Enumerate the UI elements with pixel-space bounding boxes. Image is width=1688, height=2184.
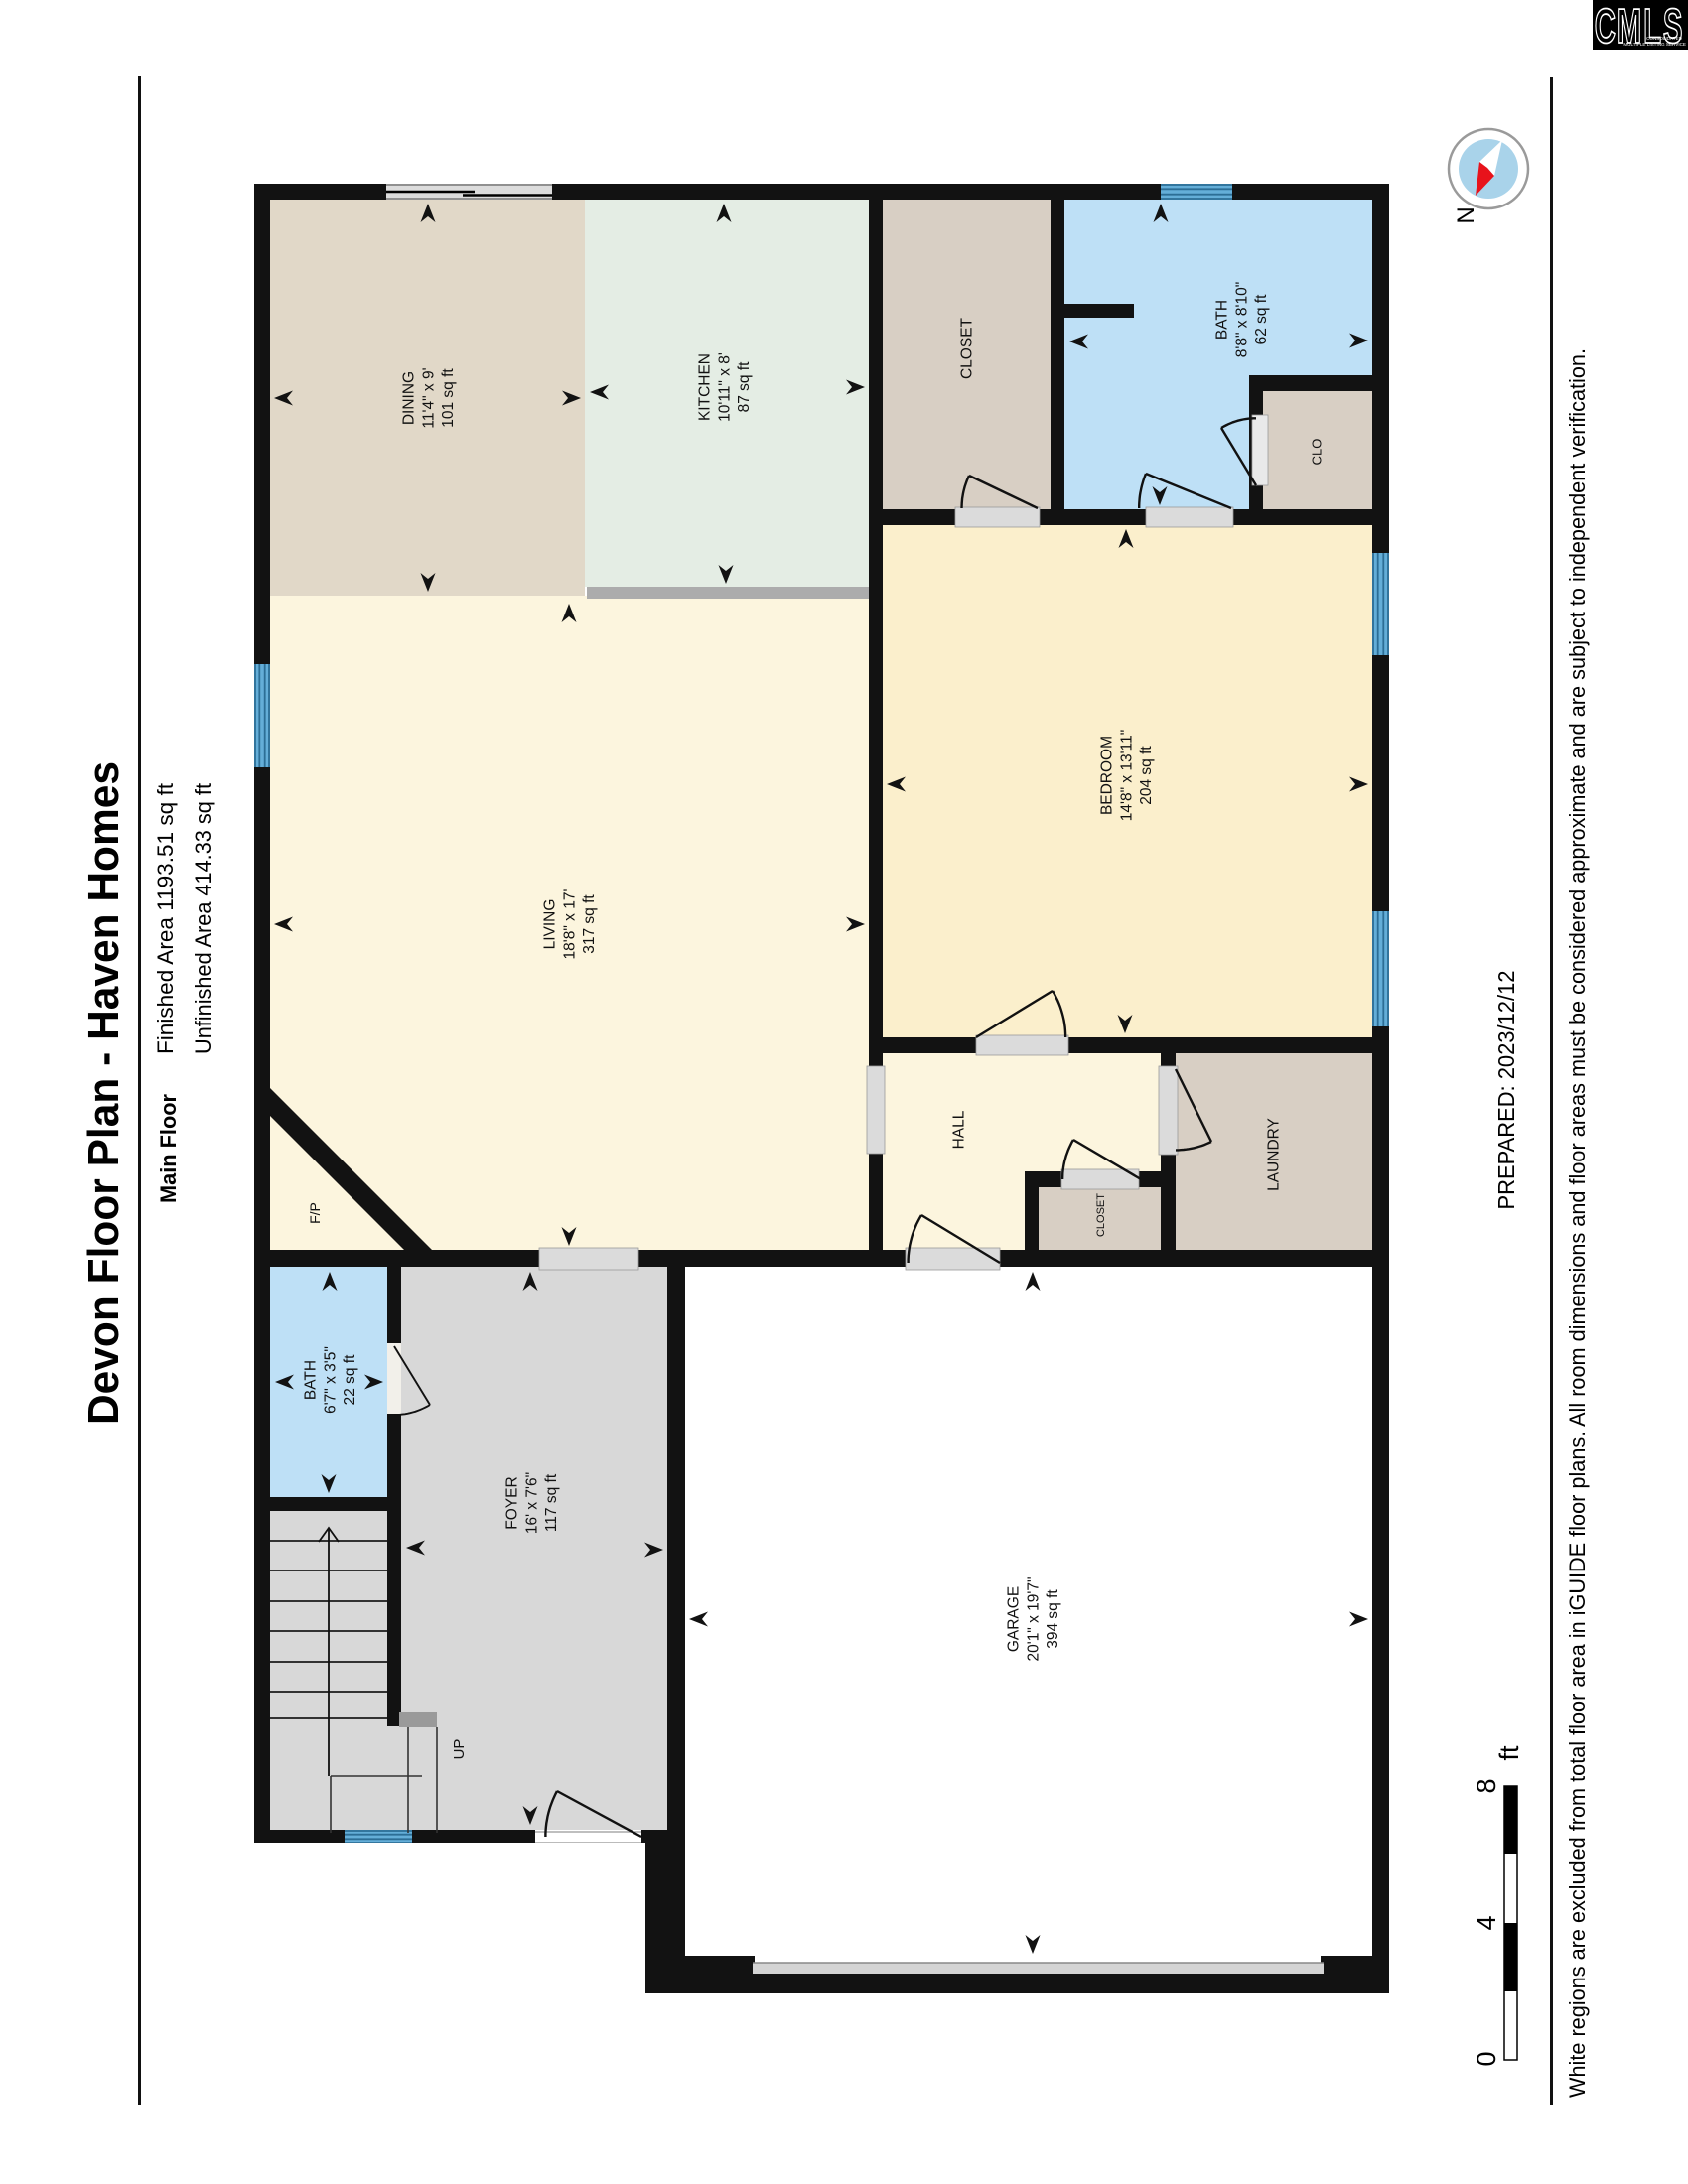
svg-text:Devon Floor Plan - Haven Homes: Devon Floor Plan - Haven Homes bbox=[79, 761, 128, 1425]
svg-text:ft: ft bbox=[1494, 1745, 1524, 1761]
svg-text:UP: UP bbox=[451, 1739, 468, 1760]
svg-text:White regions are excluded fro: White regions are excluded from total fl… bbox=[1565, 348, 1590, 2098]
svg-text:317 sq ft: 317 sq ft bbox=[581, 894, 598, 954]
svg-text:CLOSET: CLOSET bbox=[958, 317, 975, 379]
svg-text:101 sq ft: 101 sq ft bbox=[440, 368, 457, 428]
svg-text:0: 0 bbox=[1472, 2051, 1501, 2066]
svg-text:6'7" x 3'5": 6'7" x 3'5" bbox=[322, 1346, 339, 1414]
svg-text:16' x 7'6": 16' x 7'6" bbox=[523, 1472, 540, 1534]
svg-text:DINING: DINING bbox=[401, 371, 418, 425]
svg-text:20'1" x 19'7": 20'1" x 19'7" bbox=[1025, 1576, 1042, 1661]
svg-text:LIVING: LIVING bbox=[542, 899, 559, 950]
svg-text:CONSOLIDATED: CONSOLIDATED bbox=[1646, 36, 1683, 41]
svg-text:N: N bbox=[1453, 206, 1479, 223]
svg-text:11'4" x 9': 11'4" x 9' bbox=[420, 367, 437, 428]
svg-text:F/P: F/P bbox=[307, 1202, 323, 1224]
svg-text:HALL: HALL bbox=[950, 1110, 967, 1149]
svg-text:117 sq ft: 117 sq ft bbox=[543, 1473, 560, 1532]
svg-text:FOYER: FOYER bbox=[504, 1476, 521, 1529]
svg-text:PREPARED: 2023/12/12: PREPARED: 2023/12/12 bbox=[1493, 971, 1519, 1210]
svg-text:BATH: BATH bbox=[1214, 300, 1231, 340]
svg-text:BEDROOM: BEDROOM bbox=[1099, 736, 1116, 815]
svg-text:62 sq ft: 62 sq ft bbox=[1253, 294, 1270, 345]
svg-text:Main Floor: Main Floor bbox=[156, 1094, 181, 1203]
svg-text:394 sq ft: 394 sq ft bbox=[1045, 1589, 1061, 1649]
svg-text:87 sq ft: 87 sq ft bbox=[736, 361, 753, 413]
svg-text:CLOSET: CLOSET bbox=[1095, 1193, 1107, 1237]
svg-text:204 sq ft: 204 sq ft bbox=[1138, 746, 1155, 805]
svg-text:BATH: BATH bbox=[303, 1360, 320, 1400]
svg-text:22 sq ft: 22 sq ft bbox=[342, 1354, 358, 1406]
svg-text:8: 8 bbox=[1472, 1778, 1501, 1793]
svg-text:4: 4 bbox=[1472, 1915, 1501, 1930]
svg-text:GARAGE: GARAGE bbox=[1006, 1586, 1023, 1652]
svg-text:Finished Area 1193.51 sq ft: Finished Area 1193.51 sq ft bbox=[153, 783, 178, 1054]
svg-text:KITCHEN: KITCHEN bbox=[697, 353, 714, 421]
svg-text:Unfinished Area 414.33 sq ft: Unfinished Area 414.33 sq ft bbox=[191, 783, 215, 1054]
svg-text:18'8" x 17': 18'8" x 17' bbox=[561, 889, 578, 960]
svg-text:CLO: CLO bbox=[1310, 439, 1325, 466]
svg-text:14'8" x 13'11": 14'8" x 13'11" bbox=[1118, 730, 1135, 821]
svg-text:MULTIPLE LISTING SERVICE: MULTIPLE LISTING SERVICE bbox=[1623, 42, 1686, 47]
svg-text:8'8" x 8'10": 8'8" x 8'10" bbox=[1233, 282, 1250, 357]
svg-text:LAUNDRY: LAUNDRY bbox=[1265, 1118, 1282, 1191]
svg-text:10'11" x 8': 10'11" x 8' bbox=[716, 352, 733, 422]
